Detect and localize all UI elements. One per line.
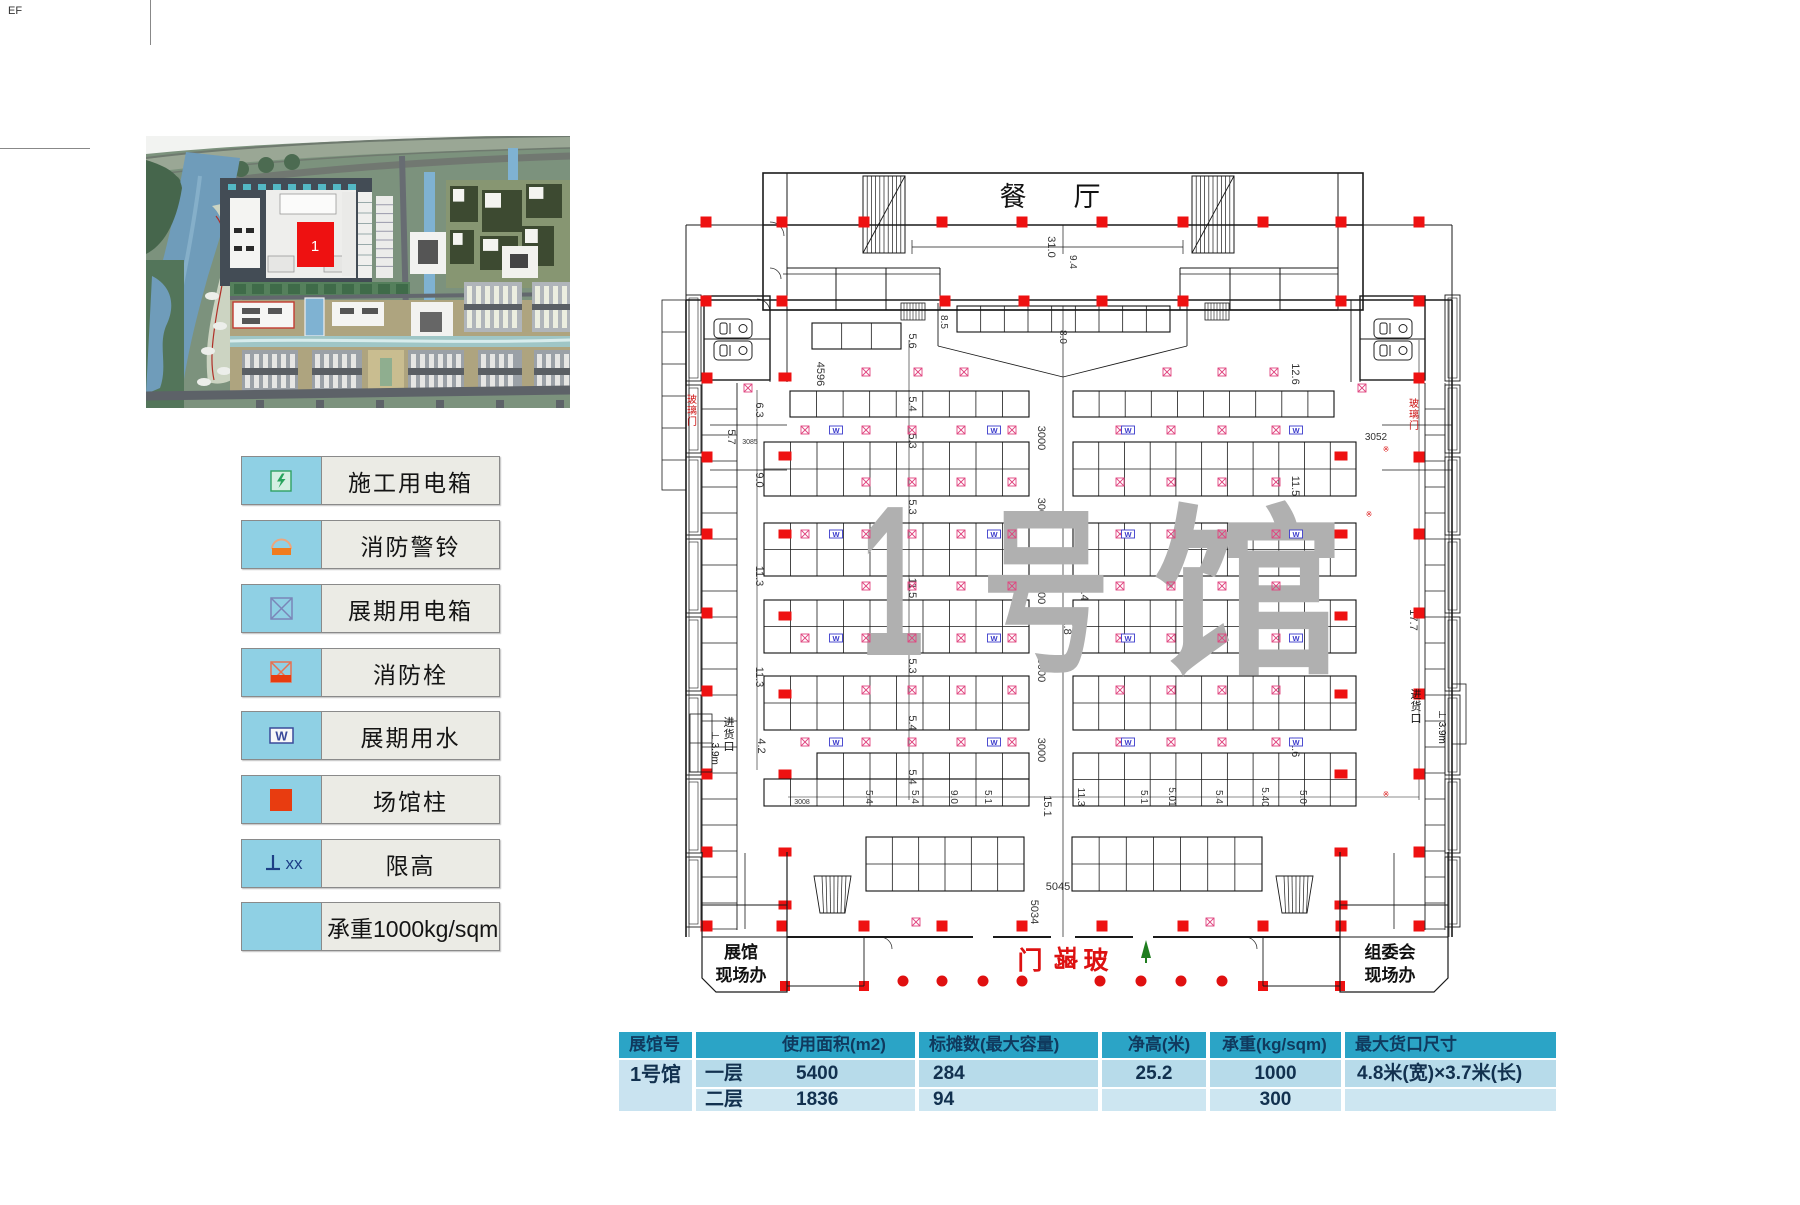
svg-text:※: ※ (1366, 510, 1373, 519)
svg-text:8.0: 8.0 (1057, 330, 1068, 344)
svg-text:厅: 厅 (1074, 182, 1101, 212)
svg-text:W: W (1292, 634, 1300, 643)
svg-text:玻: 玻 (1409, 397, 1419, 410)
svg-text:5.40: 5.40 (1259, 787, 1270, 807)
svg-text:玻: 玻 (687, 393, 697, 406)
svg-text:15.1: 15.1 (1041, 795, 1053, 816)
svg-text:5.1: 5.1 (982, 790, 993, 804)
svg-text:9.0: 9.0 (948, 790, 959, 804)
svg-text:11.3: 11.3 (753, 566, 765, 587)
svg-text:W: W (990, 634, 998, 643)
svg-text:3085: 3085 (742, 439, 758, 446)
svg-text:W: W (832, 426, 840, 435)
svg-text:号: 号 (982, 495, 1110, 694)
svg-text:W: W (1292, 426, 1300, 435)
svg-text:4596: 4596 (814, 362, 826, 386)
svg-text:5.4: 5.4 (906, 396, 918, 411)
svg-text:进: 进 (1411, 688, 1422, 701)
svg-text:货: 货 (1411, 699, 1422, 713)
svg-text:5.1: 5.1 (1138, 790, 1149, 804)
svg-text:口: 口 (724, 741, 735, 753)
svg-text:W: W (1292, 738, 1300, 747)
svg-text:5.4: 5.4 (906, 769, 918, 784)
svg-text:9.0: 9.0 (753, 472, 765, 487)
svg-text:5.6: 5.6 (906, 333, 918, 348)
svg-text:⊥ 3.9m: ⊥ 3.9m (1436, 710, 1447, 744)
svg-text:璃: 璃 (1051, 946, 1079, 970)
svg-text:5.01: 5.01 (1166, 787, 1177, 807)
svg-text:3000: 3000 (1035, 738, 1047, 762)
svg-text:现场办: 现场办 (1365, 965, 1416, 985)
svg-text:W: W (275, 729, 288, 744)
svg-text:5.0: 5.0 (1297, 790, 1308, 804)
svg-text:W: W (1292, 530, 1300, 539)
svg-text:馆: 馆 (1153, 492, 1343, 697)
svg-text:W: W (832, 530, 840, 539)
svg-text:组委会: 组委会 (1365, 942, 1416, 962)
svg-text:进: 进 (724, 716, 735, 729)
svg-text:W: W (832, 634, 840, 643)
svg-text:※: ※ (1383, 790, 1390, 799)
svg-text:口: 口 (1411, 713, 1422, 725)
svg-text:5045: 5045 (1046, 881, 1070, 893)
svg-text:xx: xx (286, 854, 304, 873)
svg-text:璃: 璃 (1409, 408, 1419, 421)
svg-text:门: 门 (1409, 419, 1419, 432)
svg-text:⊥ 3.9m: ⊥ 3.9m (709, 731, 720, 765)
svg-text:3052: 3052 (1365, 432, 1388, 443)
svg-text:31.0: 31.0 (1045, 236, 1057, 257)
svg-text:现场办: 现场办 (716, 965, 767, 985)
svg-text:9.4: 9.4 (1067, 255, 1078, 269)
svg-text:W: W (990, 738, 998, 747)
svg-text:12.6: 12.6 (1289, 363, 1301, 384)
svg-text:1: 1 (311, 238, 319, 255)
svg-text:6.3: 6.3 (753, 402, 765, 417)
svg-text:8.5: 8.5 (938, 315, 949, 329)
svg-text:3008: 3008 (794, 799, 810, 806)
svg-text:5.7: 5.7 (725, 429, 737, 444)
svg-text:※: ※ (1383, 445, 1390, 454)
svg-text:门: 门 (1017, 946, 1042, 975)
svg-text:W: W (990, 426, 998, 435)
svg-text:W: W (832, 738, 840, 747)
svg-text:5.4: 5.4 (1213, 790, 1224, 804)
svg-text:5.4: 5.4 (909, 790, 920, 804)
svg-text:11.3: 11.3 (1075, 788, 1086, 807)
svg-text:璃: 璃 (687, 404, 697, 417)
svg-text:W: W (1124, 530, 1132, 539)
svg-text:W: W (990, 530, 998, 539)
svg-text:W: W (1124, 634, 1132, 643)
svg-text:玻: 玻 (1083, 947, 1109, 975)
svg-text:货: 货 (724, 727, 735, 741)
svg-text:W: W (1124, 738, 1132, 747)
svg-text:5034: 5034 (1028, 900, 1040, 924)
svg-text:3000: 3000 (1035, 426, 1047, 450)
svg-text:5.3: 5.3 (906, 433, 918, 448)
svg-text:5.4: 5.4 (863, 790, 874, 804)
svg-text:餐: 餐 (1000, 182, 1027, 212)
svg-text:1: 1 (860, 460, 924, 701)
svg-text:展馆: 展馆 (724, 942, 758, 962)
svg-text:门: 门 (687, 415, 697, 428)
svg-text:5.4: 5.4 (906, 715, 918, 730)
svg-text:W: W (1124, 426, 1132, 435)
svg-text:4.2: 4.2 (755, 738, 767, 753)
svg-text:11.3: 11.3 (753, 667, 765, 688)
